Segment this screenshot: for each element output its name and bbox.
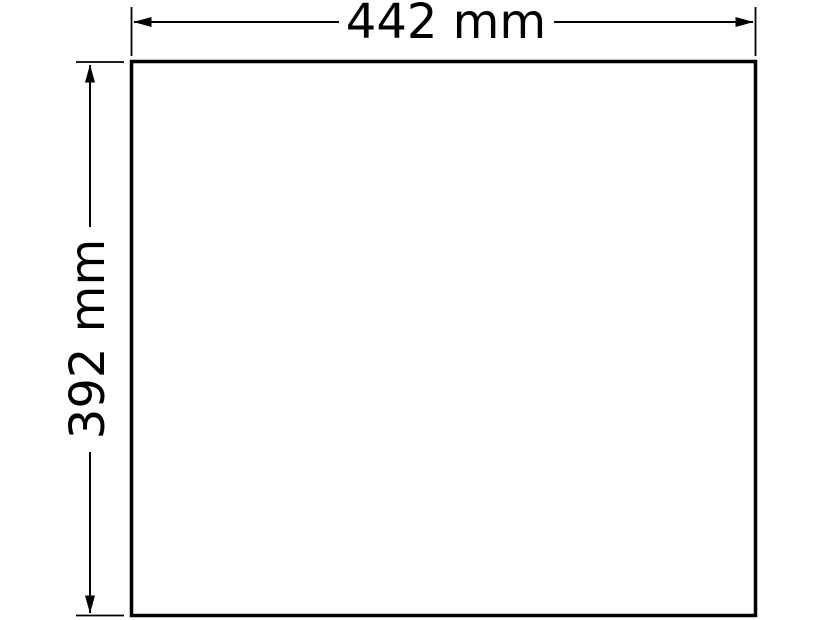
width-arrowhead-right — [736, 17, 754, 27]
height-dimension-label: 392 mm — [60, 239, 116, 439]
width-dimension: 442 mm — [132, 0, 756, 56]
width-arrowhead-left — [134, 17, 152, 27]
width-dimension-label: 442 mm — [346, 0, 546, 50]
dimension-drawing: 442 mm 392 mm — [0, 0, 826, 620]
height-dimension: 392 mm — [60, 62, 124, 616]
panel-rectangle — [132, 62, 756, 616]
height-arrowhead-bottom — [85, 596, 95, 614]
dimension-drawing-canvas: 442 mm 392 mm — [0, 0, 826, 620]
height-arrowhead-top — [85, 65, 95, 83]
